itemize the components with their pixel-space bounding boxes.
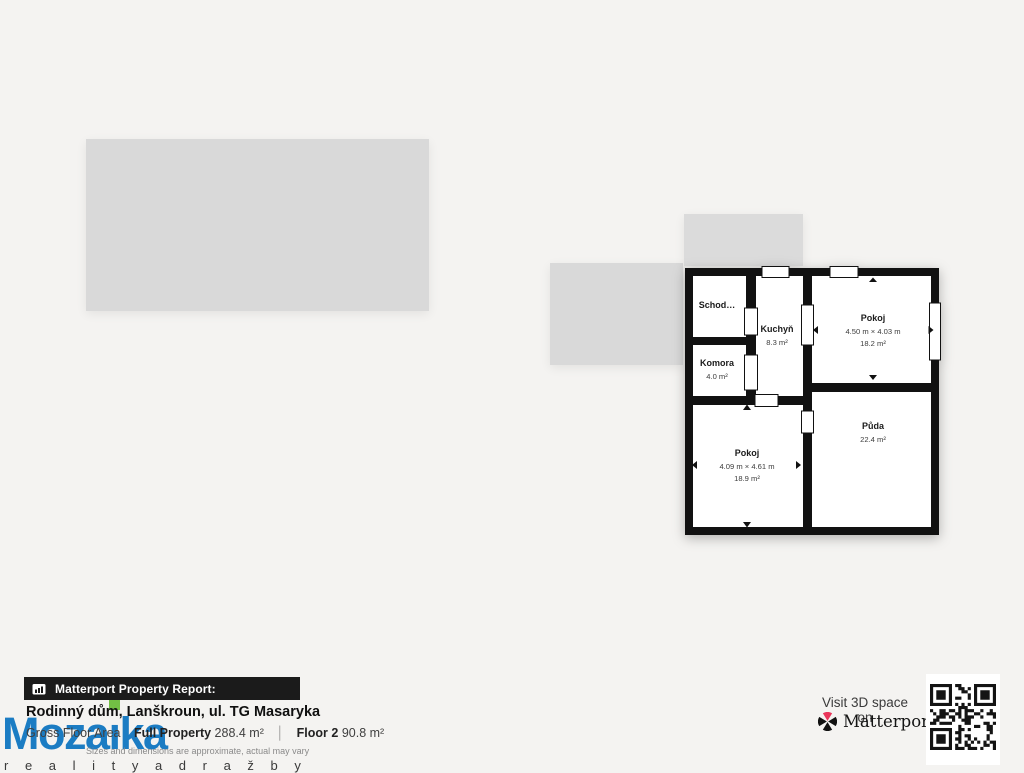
door-pantry-kitchen xyxy=(745,355,758,390)
room-area-room-bottom: 18.9 m² xyxy=(734,474,760,483)
building-chart-icon xyxy=(31,681,47,697)
room-dims-room-bottom: 4.09 m × 4.61 m xyxy=(719,462,774,471)
stat-area-label: Gross Floor Area xyxy=(26,726,120,740)
door-kitchen-room-right xyxy=(802,305,814,345)
window-kitchen-top xyxy=(762,267,789,278)
other-floor-outline-top xyxy=(684,214,803,266)
door-room-attic xyxy=(802,411,814,433)
disclaimer-text: Sizes and dimensions are approximate, ac… xyxy=(86,746,309,756)
room-dims-room-top: 4.50 m × 4.03 m xyxy=(845,327,900,336)
room-label-attic: Půda xyxy=(862,421,885,431)
room-area-room-top: 18.2 m² xyxy=(860,339,886,348)
other-floor-outline-middle xyxy=(550,263,683,365)
room-area-attic: 22.4 m² xyxy=(860,435,886,444)
property-title: Rodinný dům, Lanškroun, ul. TG Masaryka xyxy=(26,704,320,720)
window-room-top xyxy=(830,267,858,278)
qr-code xyxy=(926,674,1000,765)
other-floor-outline-large xyxy=(86,139,429,311)
room-label-room-top: Pokoj xyxy=(861,313,886,323)
stat-full-property-label: Full Property xyxy=(134,726,211,740)
report-bar-label: Matterport Property Report: xyxy=(55,682,216,696)
stat-floor-label: Floor 2 xyxy=(297,726,339,740)
qr-pattern xyxy=(930,684,996,750)
report-header-bar: Matterport Property Report: xyxy=(24,677,300,700)
matterport-pinwheel-icon xyxy=(818,712,837,731)
matterport-logo: Matterport® xyxy=(818,712,943,731)
room-label-room-bottom: Pokoj xyxy=(735,448,760,458)
floor-plan: Schod… Kuchyň 8.3 m² Pokoj 4.50 m × 4.03… xyxy=(685,268,939,535)
stat-floor-value: 90.8 m² xyxy=(342,726,384,740)
door-stairs-kitchen xyxy=(745,308,758,335)
room-label-stairs: Schod… xyxy=(699,300,736,310)
door-kitchen-room xyxy=(755,395,778,407)
room-area-kitchen: 8.3 m² xyxy=(766,338,788,347)
stat-divider: │ xyxy=(276,726,284,740)
room-label-kitchen: Kuchyň xyxy=(760,324,793,334)
mozaika-tagline: r e a l i t y a d r a ž b y xyxy=(4,759,307,772)
room-area-pantry: 4.0 m² xyxy=(706,372,728,381)
room-label-pantry: Komora xyxy=(700,358,735,368)
mozaika-logo: Mozaıka r e a l i t y a d r a ž b y xyxy=(2,711,307,772)
stat-full-property-value: 288.4 m² xyxy=(215,726,264,740)
property-stats: Gross Floor Area Full Property 288.4 m² … xyxy=(26,726,384,740)
